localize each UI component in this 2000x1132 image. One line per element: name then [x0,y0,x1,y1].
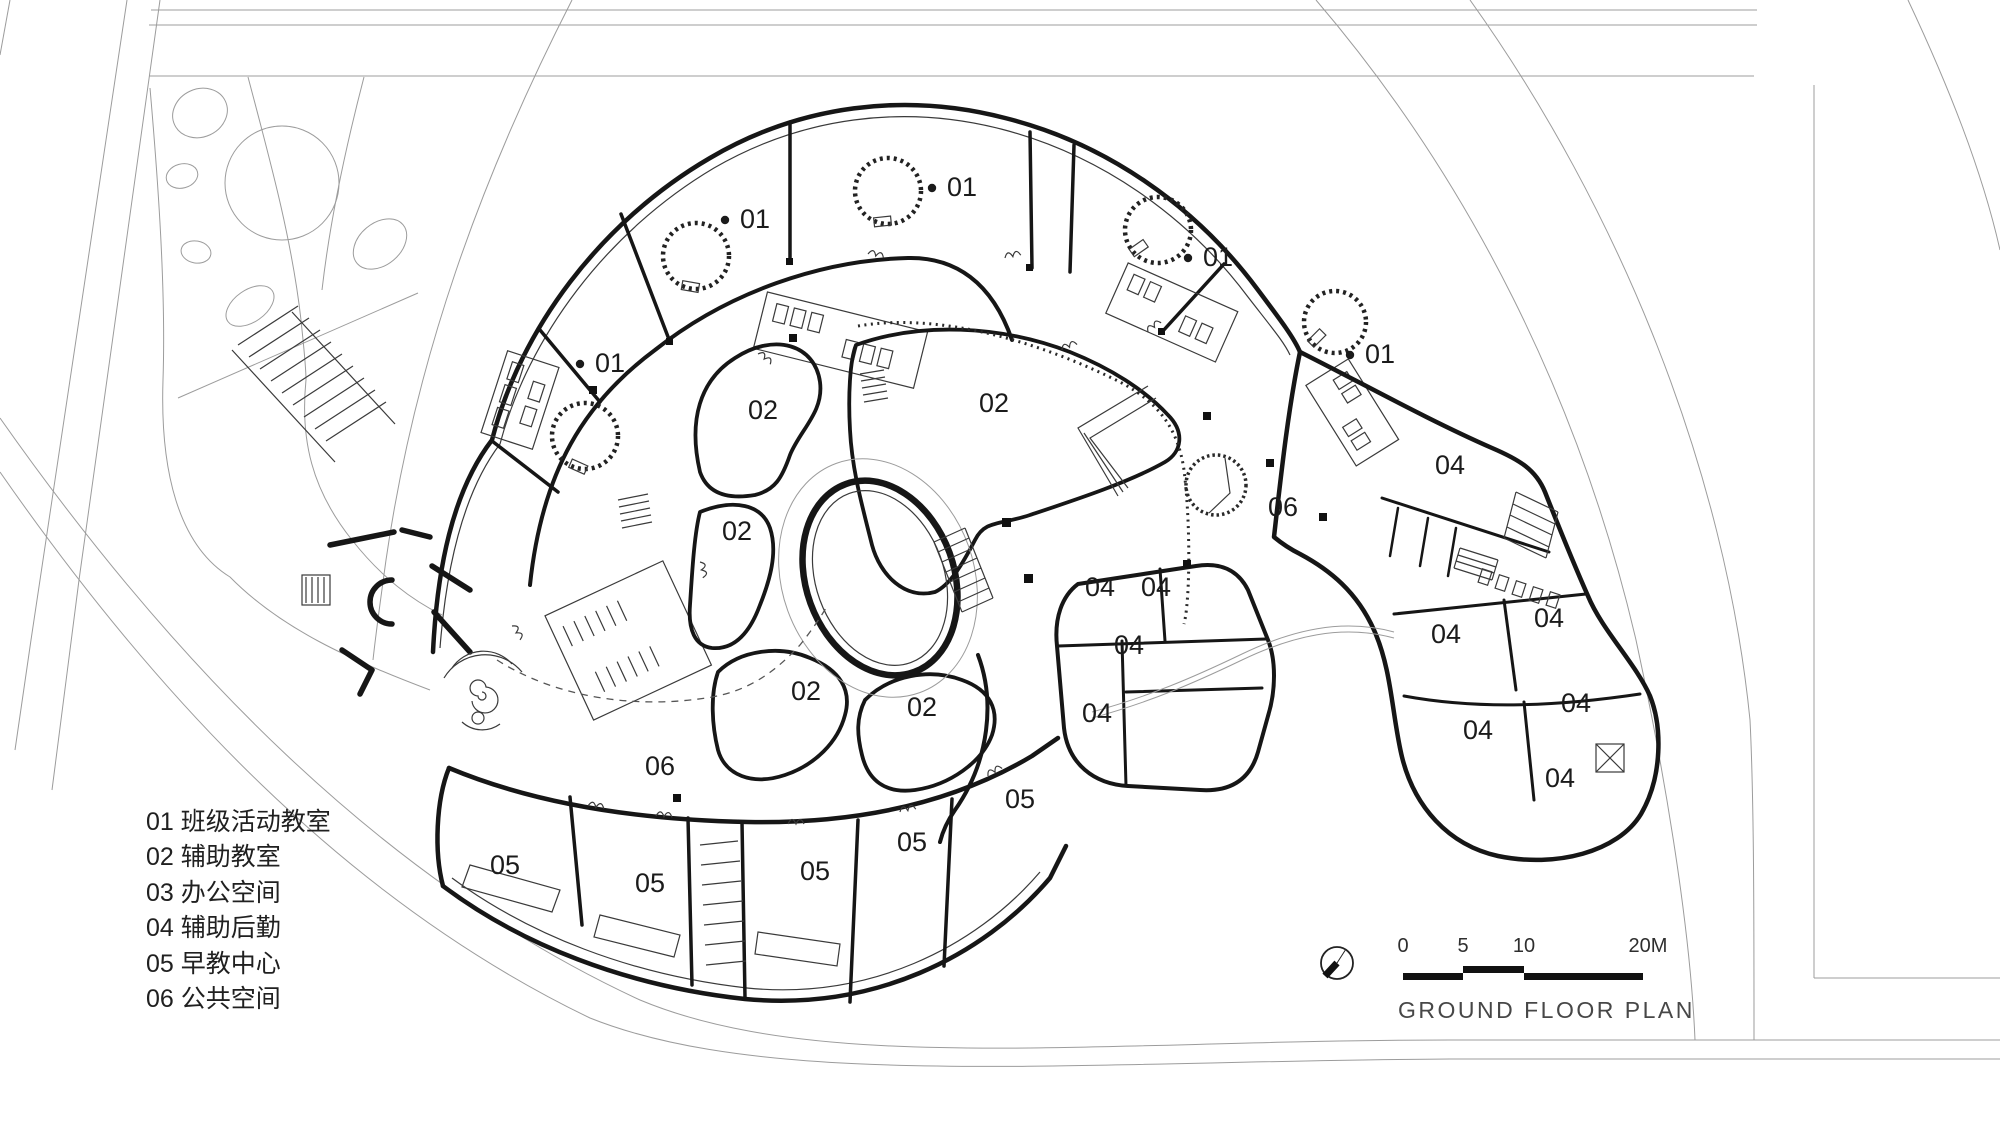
room-label-04-18: 04 [1463,715,1493,745]
legend-item-05: 05 早教中心 [146,950,281,978]
legend-item-03: 03 办公空间 [146,879,281,907]
room-label-02-9: 02 [907,692,937,722]
plan-title: GROUND FLOOR PLAN [1398,997,1695,1023]
room-label-04-17: 04 [1561,688,1591,718]
legend-item-04: 04 辅助后勤 [146,914,281,942]
legend-item-01: 01 班级活动教室 [146,808,331,836]
scale-bar: 051020M [1397,935,1667,980]
room-label-01-2: 01 [947,172,977,202]
room-label-01-3: 01 [1203,242,1233,272]
room-label-05-22: 05 [800,856,830,886]
north-arrow-icon [1321,947,1353,979]
room-label-02-5: 02 [748,395,778,425]
room-label-01-4: 01 [1365,339,1395,369]
central-courtyard [746,431,1010,726]
room-label-01-0: 01 [595,348,625,378]
room-label-04-14: 04 [1082,698,1112,728]
room-label-02-6: 02 [979,388,1009,418]
room-label-bullet [1346,351,1354,359]
site-boundary-lines [0,0,2000,1066]
room-label-06-25: 06 [1268,492,1298,522]
room-label-bullet [1184,254,1192,262]
amphitheater [663,223,729,292]
legend-item-02: 02 辅助教室 [146,843,281,871]
legend-item-06: 06 公共空间 [146,985,281,1013]
scale-tick-10: 10 [1513,935,1535,957]
room-label-02-7: 02 [722,516,752,546]
scale-tick-0: 0 [1397,935,1408,957]
ramp-walk [232,306,395,462]
entrance-plaza [302,530,522,730]
room-label-04-19: 04 [1545,763,1575,793]
columns [589,258,1327,802]
room-label-05-24: 05 [1005,784,1035,814]
room-label-04-13: 04 [1114,630,1144,660]
room-label-bullet [928,184,936,192]
room-label-05-21: 05 [635,868,665,898]
title-block: 051020M GROUND FLOOR PLAN [1321,935,1695,1023]
room-label-04-15: 04 [1431,619,1461,649]
room-label-bullet [576,360,584,368]
floor-plan-page: 0101010101020202020204040404040404040404… [0,0,2000,1132]
room-label-06-26: 06 [645,751,675,781]
service-wing-east [1274,352,1658,860]
floor-plan-canvas: 0101010101020202020204040404040404040404… [0,0,2000,1132]
room-label-04-11: 04 [1085,572,1115,602]
plaza-clock-circle [1186,455,1246,515]
scale-tick-5: 5 [1457,935,1468,957]
elevator-icon [1596,744,1624,772]
amphitheater-circles [552,158,1366,474]
legend: 01 班级活动教室02 辅助教室03 办公空间04 辅助后勤05 早教中心06 … [146,808,331,1013]
scale-tick-20M: 20M [1629,935,1668,957]
room-label-04-16: 04 [1534,603,1564,633]
room-label-bullet [721,216,729,224]
room-label-02-8: 02 [791,676,821,706]
room-label-05-23: 05 [897,827,927,857]
amphitheater [855,158,921,227]
room-label-01-1: 01 [740,204,770,234]
spiral-sculpture [444,651,522,730]
landscape-garden [163,77,442,615]
room-label-04-10: 04 [1435,450,1465,480]
room-label-04-12: 04 [1141,572,1171,602]
room-label-05-20: 05 [490,850,520,880]
amphitheater [1304,291,1366,353]
